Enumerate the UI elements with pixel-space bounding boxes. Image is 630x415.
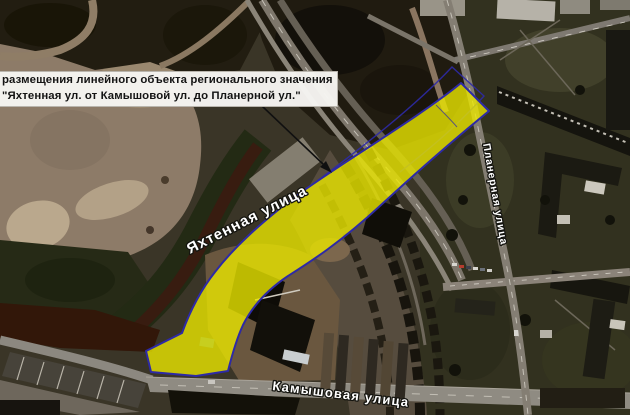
map-viewport: Яхтенная улица Планерная улица Камышовая… <box>0 0 630 415</box>
annotation-line-2: "Яхтенная ул. от Камышовой ул. до Планер… <box>2 89 333 105</box>
satellite-basemap: Яхтенная улица Планерная улица Камышовая… <box>0 0 630 415</box>
annotation-line-1: размещения линейного объекта регионально… <box>2 73 333 89</box>
zone-annotation-callout: размещения линейного объекта регионально… <box>0 71 338 107</box>
